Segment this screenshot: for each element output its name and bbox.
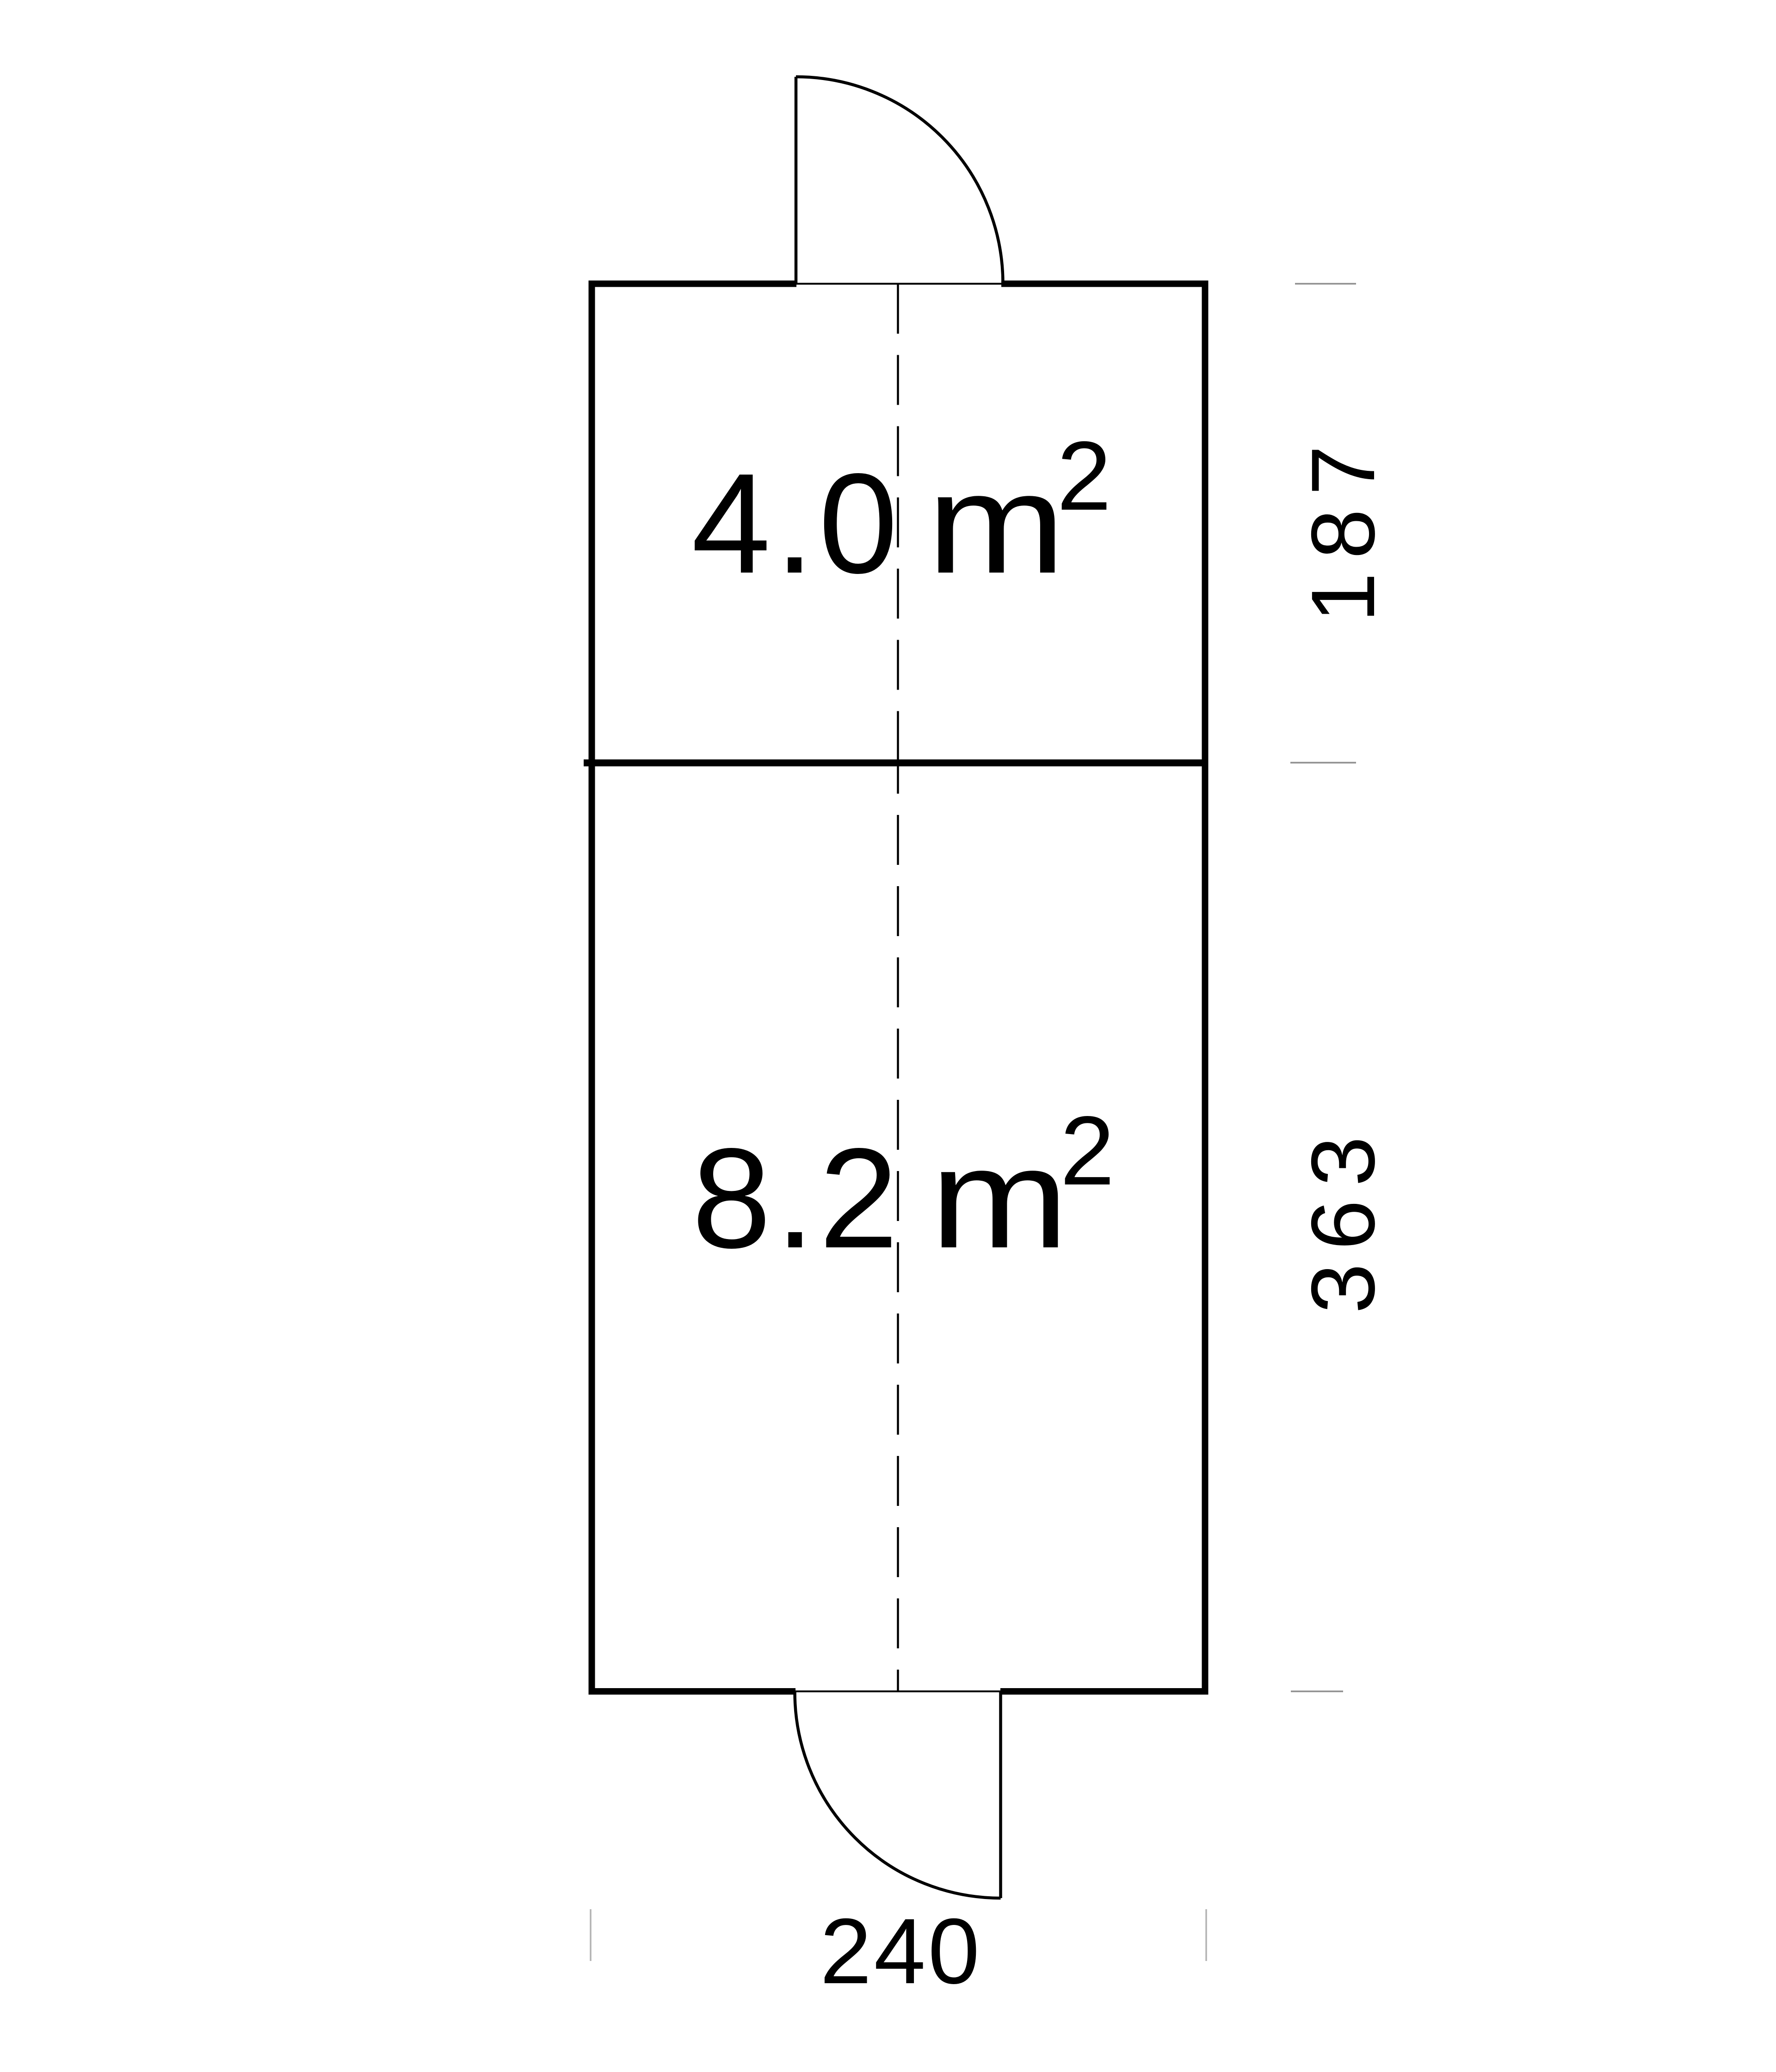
svg-text:4.0: 4.0 xyxy=(691,444,902,603)
svg-text:8.2: 8.2 xyxy=(692,1119,902,1278)
svg-text:2: 2 xyxy=(1060,1096,1115,1205)
svg-text:240: 240 xyxy=(820,1899,982,2003)
svg-text:m: m xyxy=(927,444,1066,603)
svg-text:363: 363 xyxy=(1293,1123,1394,1313)
svg-text:187: 187 xyxy=(1293,432,1394,623)
svg-text:2: 2 xyxy=(1057,421,1111,530)
svg-text:m: m xyxy=(930,1119,1069,1278)
